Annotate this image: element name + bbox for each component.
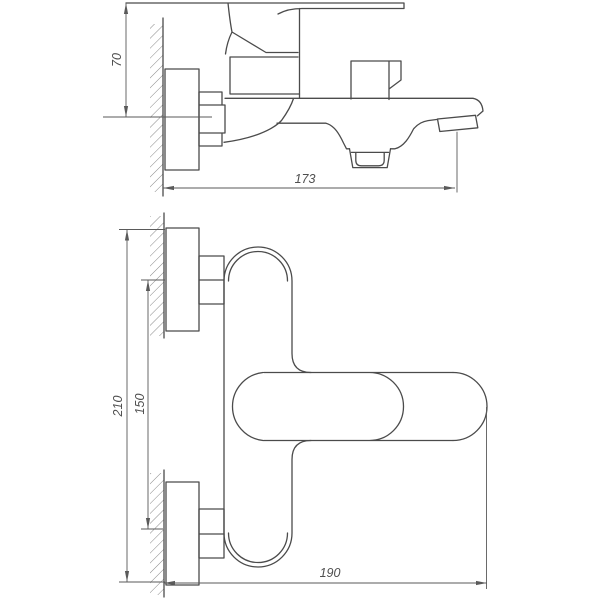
arrowhead-up bbox=[125, 230, 129, 241]
arrowhead-up bbox=[146, 280, 150, 291]
cartridge-block bbox=[230, 57, 300, 94]
dimension-210-label: 210 bbox=[111, 396, 125, 418]
shower-hose-fitting bbox=[350, 149, 391, 168]
arrowhead-down bbox=[125, 571, 129, 582]
side-view: 70 173 bbox=[103, 3, 483, 196]
spout-body bbox=[224, 98, 483, 149]
dimension-173-label: 173 bbox=[295, 172, 316, 186]
handle-lever bbox=[126, 3, 404, 98]
dimension-190-label: 190 bbox=[320, 566, 341, 580]
arrowhead-right bbox=[476, 581, 487, 585]
dimension-150-label: 150 bbox=[133, 394, 147, 415]
escutcheon-upper bbox=[166, 228, 199, 331]
connection-nut bbox=[199, 92, 225, 146]
wall-hatching-upper bbox=[150, 216, 164, 336]
arrowhead-left bbox=[163, 186, 174, 190]
drawing-canvas: 70 173 210 bbox=[0, 0, 600, 600]
arrowhead-right bbox=[444, 186, 455, 190]
arrowhead-down bbox=[124, 106, 128, 117]
escutcheon bbox=[165, 69, 199, 170]
connection-nut-lower bbox=[199, 509, 224, 558]
plan-view: 210 150 190 bbox=[111, 213, 487, 597]
wall-hatching bbox=[150, 24, 163, 192]
dimension-173: 173 bbox=[163, 132, 457, 193]
spout-bar bbox=[232, 373, 453, 441]
connection-nut-upper bbox=[199, 256, 224, 304]
arrowhead-up bbox=[124, 3, 128, 14]
diverter-knob bbox=[351, 61, 401, 100]
arrowhead-down bbox=[146, 518, 150, 529]
faucet-technical-drawing: 70 173 210 bbox=[0, 0, 600, 600]
handle-bar-end bbox=[453, 373, 487, 441]
wall-hatching-lower bbox=[150, 473, 164, 595]
dimension-190: 190 bbox=[164, 407, 487, 589]
aerator bbox=[438, 115, 478, 131]
escutcheon-lower bbox=[166, 482, 199, 585]
dimension-70-label: 70 bbox=[110, 53, 124, 67]
body-column bbox=[224, 247, 311, 567]
